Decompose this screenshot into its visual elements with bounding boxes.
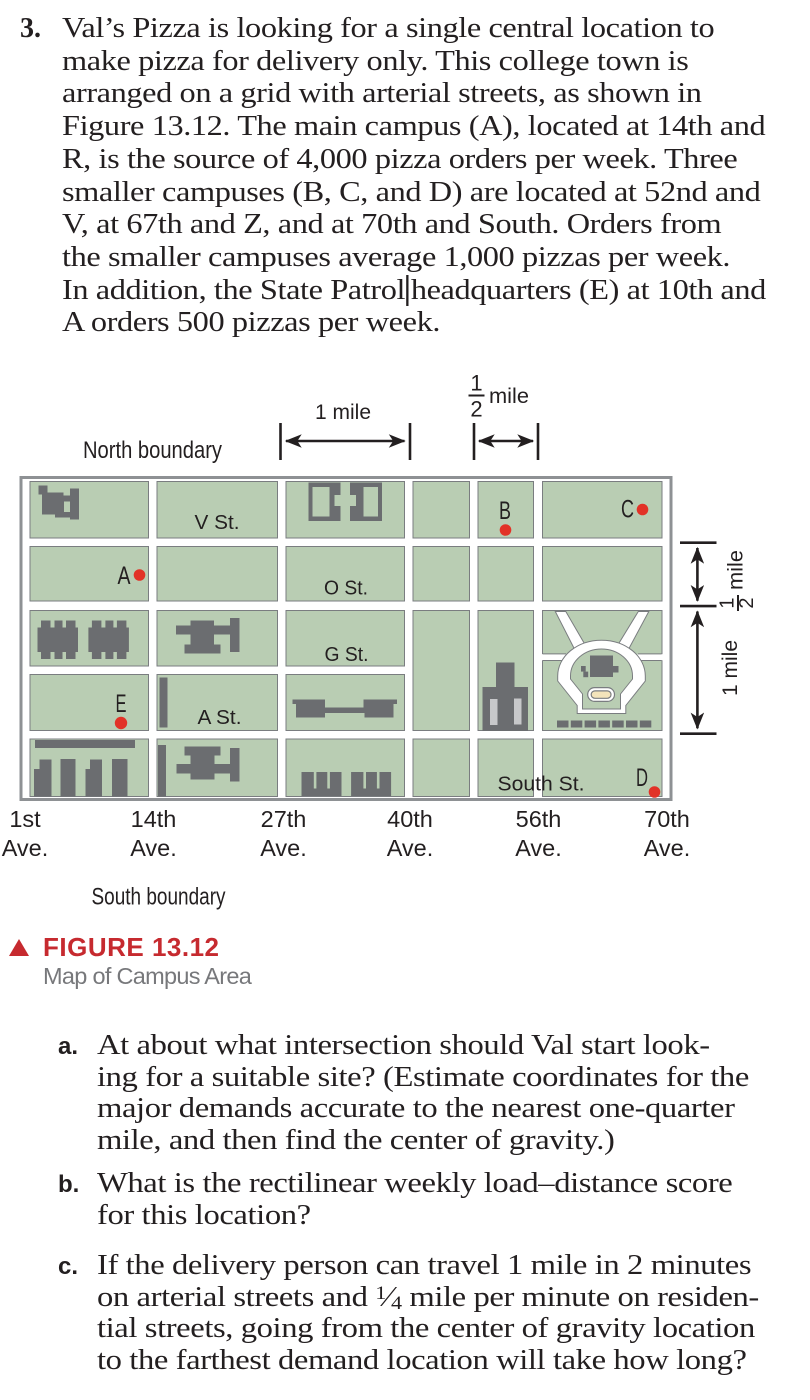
- svg-text:Ave.: Ave.: [515, 835, 562, 861]
- svg-text:D: D: [636, 764, 648, 792]
- svg-text:56th: 56th: [516, 806, 562, 832]
- svg-text:Ave.: Ave.: [387, 835, 434, 861]
- svg-text:Ave.: Ave.: [2, 835, 49, 861]
- svg-text:mile: mile: [725, 550, 748, 590]
- svg-text:mile: mile: [489, 385, 529, 408]
- svg-text:1 mile: 1 mile: [315, 401, 371, 424]
- svg-text:27th: 27th: [261, 806, 307, 832]
- svg-text:Ave.: Ave.: [260, 835, 307, 861]
- svg-text:40th: 40th: [387, 806, 433, 832]
- svg-text:South boundary: South boundary: [92, 884, 227, 911]
- svg-text:1: 1: [470, 371, 482, 396]
- svg-text:South St.: South St.: [498, 774, 585, 796]
- svg-text:C: C: [621, 496, 634, 524]
- svg-text:E: E: [116, 690, 127, 718]
- svg-text:B: B: [499, 497, 511, 525]
- svg-text:14th: 14th: [131, 806, 177, 832]
- svg-text:North boundary: North boundary: [83, 437, 223, 464]
- svg-text:2: 2: [736, 597, 758, 608]
- svg-text:O St.: O St.: [324, 578, 368, 600]
- svg-text:70th: 70th: [644, 806, 690, 832]
- svg-text:V St.: V St.: [195, 512, 240, 534]
- svg-text:1st: 1st: [9, 806, 41, 832]
- svg-text:Ave.: Ave.: [644, 835, 691, 861]
- svg-text:G St.: G St.: [325, 644, 369, 666]
- svg-text:1 mile: 1 mile: [719, 640, 742, 696]
- svg-text:Ave.: Ave.: [130, 835, 177, 861]
- svg-text:A: A: [118, 562, 131, 590]
- svg-text:2: 2: [470, 397, 482, 422]
- svg-text:A St.: A St.: [198, 707, 242, 729]
